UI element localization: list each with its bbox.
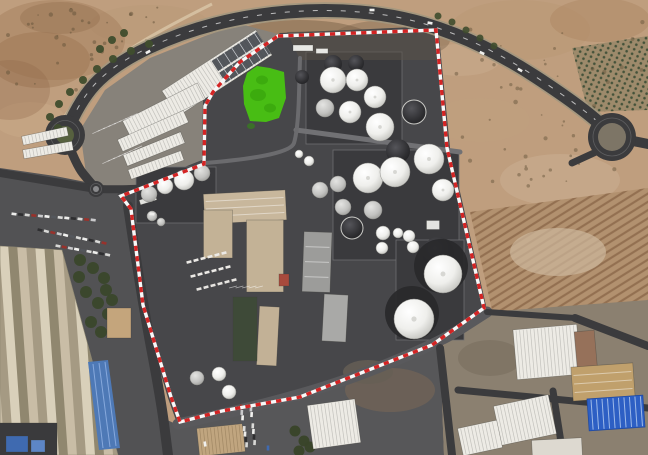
storage-tank: [341, 217, 363, 239]
building: [293, 45, 313, 51]
parked-car: [243, 426, 246, 431]
storage-tank: [147, 211, 157, 221]
warehouse-shed: [513, 324, 581, 379]
storage-tank: [348, 55, 364, 71]
parked-car: [245, 442, 248, 447]
storage-tank: [376, 242, 388, 254]
parked-car: [241, 415, 244, 420]
vehicle: [370, 9, 375, 12]
tree: [449, 19, 456, 26]
tree: [87, 262, 99, 274]
storage-tank: [335, 199, 351, 215]
storage-tank: [190, 371, 204, 385]
building: [6, 436, 28, 452]
tree: [74, 254, 86, 266]
parked-car: [253, 440, 256, 445]
storage-tank: [330, 176, 346, 192]
tree: [85, 316, 97, 328]
tree: [46, 113, 54, 121]
tree: [73, 271, 85, 283]
tree: [106, 294, 118, 306]
building: [571, 363, 635, 401]
building: [316, 49, 328, 54]
building: [587, 395, 645, 431]
satellite-map: [0, 0, 648, 455]
tree: [92, 297, 104, 309]
storage-tank: [157, 218, 165, 226]
building: [302, 232, 332, 293]
tree: [120, 29, 128, 37]
building: [322, 294, 348, 342]
tree: [145, 40, 153, 48]
parked-car: [251, 418, 254, 423]
storage-tank: [295, 150, 303, 158]
tree: [100, 284, 112, 296]
tree: [463, 27, 470, 34]
tree: [108, 36, 116, 44]
tree: [79, 76, 87, 84]
storage-tank: [316, 99, 334, 117]
storage-tank: [403, 230, 415, 242]
building: [532, 438, 583, 455]
tree: [435, 13, 442, 20]
building: [427, 221, 440, 230]
parked-car: [240, 410, 243, 415]
tree: [98, 272, 110, 284]
building: [247, 220, 284, 292]
tree: [477, 35, 484, 42]
parked-car: [244, 437, 247, 442]
satellite-map-canvas: [0, 0, 648, 455]
storage-tank: [402, 100, 426, 124]
storage-tank: [295, 70, 309, 84]
building: [233, 297, 257, 361]
warehouse-shed: [197, 424, 246, 455]
tree: [93, 65, 101, 73]
tree: [55, 100, 63, 108]
parked-car: [251, 423, 254, 428]
storage-tank: [304, 156, 314, 166]
storage-tank: [376, 226, 390, 240]
storage-tank: [364, 201, 382, 219]
building: [31, 440, 45, 452]
storage-tank: [222, 385, 236, 399]
tree: [66, 88, 74, 96]
building: [204, 210, 233, 258]
parked-car: [250, 412, 253, 417]
storage-tank: [312, 182, 328, 198]
parked-car: [244, 431, 247, 436]
tree: [127, 47, 135, 55]
warehouse-shed: [307, 399, 361, 449]
tree: [491, 43, 498, 50]
tree: [96, 45, 104, 53]
building: [279, 274, 289, 286]
building: [107, 308, 131, 338]
parked-car: [253, 434, 256, 439]
tree: [95, 326, 107, 338]
vehicle: [267, 446, 270, 451]
storage-tank: [393, 228, 403, 238]
parked-car: [252, 429, 255, 434]
parked-car: [242, 421, 245, 426]
building: [256, 306, 279, 366]
tree: [290, 426, 301, 437]
tree: [80, 286, 92, 298]
storage-tank: [407, 241, 419, 253]
storage-tank: [212, 367, 226, 381]
tree: [109, 55, 117, 63]
